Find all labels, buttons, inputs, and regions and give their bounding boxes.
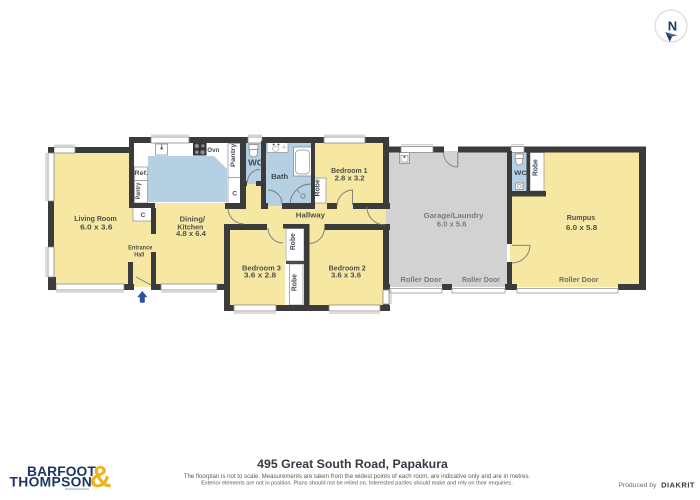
- svg-text:&: &: [90, 460, 112, 494]
- svg-text:Pantry: Pantry: [230, 143, 237, 167]
- svg-text:Robe: Robe: [531, 159, 540, 176]
- svg-text:Robe: Robe: [290, 274, 299, 291]
- svg-text:WC: WC: [514, 170, 527, 177]
- svg-text:Ref.: Ref.: [134, 170, 148, 177]
- svg-text:Rumpus: Rumpus: [567, 213, 596, 222]
- svg-text:Pantry: Pantry: [135, 182, 142, 199]
- svg-text:3.6 x 3.6: 3.6 x 3.6: [331, 270, 361, 279]
- svg-text:Produced by: Produced by: [618, 482, 657, 489]
- svg-text:2.8 x 3.2: 2.8 x 3.2: [335, 174, 365, 183]
- svg-text:6.0 x 5.6: 6.0 x 5.6: [437, 220, 467, 229]
- svg-text:Roller Door: Roller Door: [400, 275, 441, 284]
- svg-text:Living Room: Living Room: [74, 214, 117, 223]
- svg-text:Ovn: Ovn: [207, 147, 219, 154]
- svg-text:Roller Door: Roller Door: [559, 275, 599, 284]
- svg-text:Bath: Bath: [271, 172, 289, 181]
- svg-text:Exterior elements are not in p: Exterior elements are not in position. P…: [201, 481, 513, 487]
- svg-text:C: C: [141, 212, 146, 219]
- svg-text:C: C: [232, 190, 237, 197]
- svg-text:DIAKRIT: DIAKRIT: [661, 480, 695, 489]
- svg-text:6.0 x 3.6: 6.0 x 3.6: [80, 223, 112, 232]
- svg-text:Hall: Hall: [134, 251, 144, 258]
- svg-text:N: N: [668, 19, 677, 34]
- svg-text:Roller Door: Roller Door: [462, 275, 500, 284]
- svg-text:495 Great South Road, Papakura: 495 Great South Road, Papakura: [257, 457, 448, 471]
- svg-text:THOMPSON: THOMPSON: [10, 475, 93, 490]
- svg-text:Robe: Robe: [288, 233, 297, 250]
- svg-text:3.6 x 2.8: 3.6 x 2.8: [244, 270, 276, 279]
- svg-text:6.0 x 5.8: 6.0 x 5.8: [566, 223, 597, 232]
- svg-text:The floorplan is not to scale.: The floorplan is not to scale. Measureme…: [184, 473, 531, 480]
- svg-text:Hallway: Hallway: [296, 211, 326, 220]
- svg-text:4.8 x 6.4: 4.8 x 6.4: [176, 229, 207, 238]
